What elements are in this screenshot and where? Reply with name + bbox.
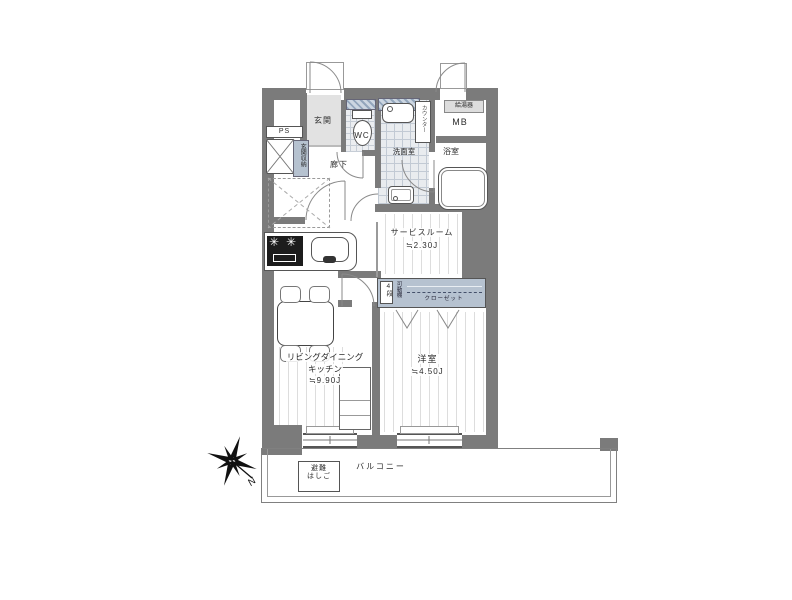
window <box>303 433 357 448</box>
evacuation-hatch-label-2: はしご <box>307 473 331 480</box>
pipe-space: PS <box>266 126 303 138</box>
refrigerator-space <box>268 178 330 228</box>
washing-machine-pan <box>388 186 414 204</box>
western-room-label: 洋室 <box>400 354 455 365</box>
genkan-storage: 玄関収納 <box>293 140 309 177</box>
water-heater: 給湯器 <box>444 100 484 113</box>
wall <box>429 188 435 204</box>
utility-counter-label: カウンター <box>420 105 427 133</box>
burner-icon: ✳ <box>269 235 279 249</box>
grill <box>273 254 296 262</box>
washbasin-faucet <box>387 106 393 112</box>
entrance-door-recess <box>306 62 344 90</box>
dining-table <box>277 301 334 346</box>
shelf-line <box>407 286 482 287</box>
window <box>397 433 462 448</box>
western-room-size: ≒4.50J <box>400 367 455 377</box>
wall <box>436 136 486 143</box>
wall <box>486 100 498 448</box>
wall <box>357 435 397 448</box>
shelf-tier-box: 4段 <box>380 281 393 304</box>
utility-counter: カウンター <box>415 101 431 143</box>
shelf-tier-label: 4段 <box>384 283 392 297</box>
wall <box>462 435 498 448</box>
meter-box-door-recess <box>440 63 467 89</box>
drain-icon <box>393 196 398 201</box>
toilet-tank <box>352 110 372 119</box>
north-label: N <box>246 475 259 489</box>
stove: ✳ ✳ <box>267 236 303 266</box>
evacuation-hatch: 避難 はしご <box>298 461 340 492</box>
shelf-line <box>407 292 482 293</box>
wall <box>466 88 498 100</box>
ldk-label-1: リビングダイニング <box>285 352 365 362</box>
meter-box-label: MB <box>447 117 473 128</box>
movable-shelf-label: 可動棚 <box>395 281 402 298</box>
wc-label: WC <box>352 131 372 141</box>
sliding-partition <box>376 222 378 277</box>
sink-faucet <box>323 256 336 263</box>
service-room-label: サービスルーム <box>382 228 462 238</box>
evacuation-hatch-label-1: 避難 <box>311 465 327 472</box>
pipe-space-label: PS <box>267 128 302 136</box>
chair <box>280 286 301 303</box>
ldk-size: ≒9.90J <box>285 376 365 386</box>
bathroom-label: 浴室 <box>440 147 462 157</box>
burner-icon: ✳ <box>286 235 296 249</box>
wall <box>375 100 381 188</box>
pipe-shaft <box>266 139 294 174</box>
service-room-size: ≒2.30J <box>382 241 462 251</box>
hallway-label: 廊下 <box>325 160 353 170</box>
closet-label: クローゼット <box>405 296 483 303</box>
north-arrow <box>232 461 252 478</box>
genkan-storage-label: 玄関収納 <box>298 143 305 167</box>
closet: 4段 可動棚 クローゼット <box>377 278 486 308</box>
wall <box>462 204 486 278</box>
washroom-label: 洗面室 <box>386 147 422 156</box>
wc-shelf <box>346 99 376 110</box>
wall <box>338 271 381 278</box>
ldk-label-2: キッチン <box>285 364 365 374</box>
north-compass-icon <box>199 428 265 494</box>
wall <box>372 302 380 435</box>
floor-plan: { "plan": { "rooms": { "genkan": {"label… <box>0 0 792 600</box>
balcony-label: バルコニー <box>350 462 412 472</box>
water-heater-label: 給湯器 <box>445 103 483 110</box>
chair <box>309 286 330 303</box>
bathtub <box>438 167 488 210</box>
washroom-door-arc <box>351 194 378 221</box>
window-sill <box>400 426 459 434</box>
wall <box>338 300 352 307</box>
genkan-step-line <box>305 145 341 147</box>
genkan-label: 玄関 <box>305 116 341 126</box>
